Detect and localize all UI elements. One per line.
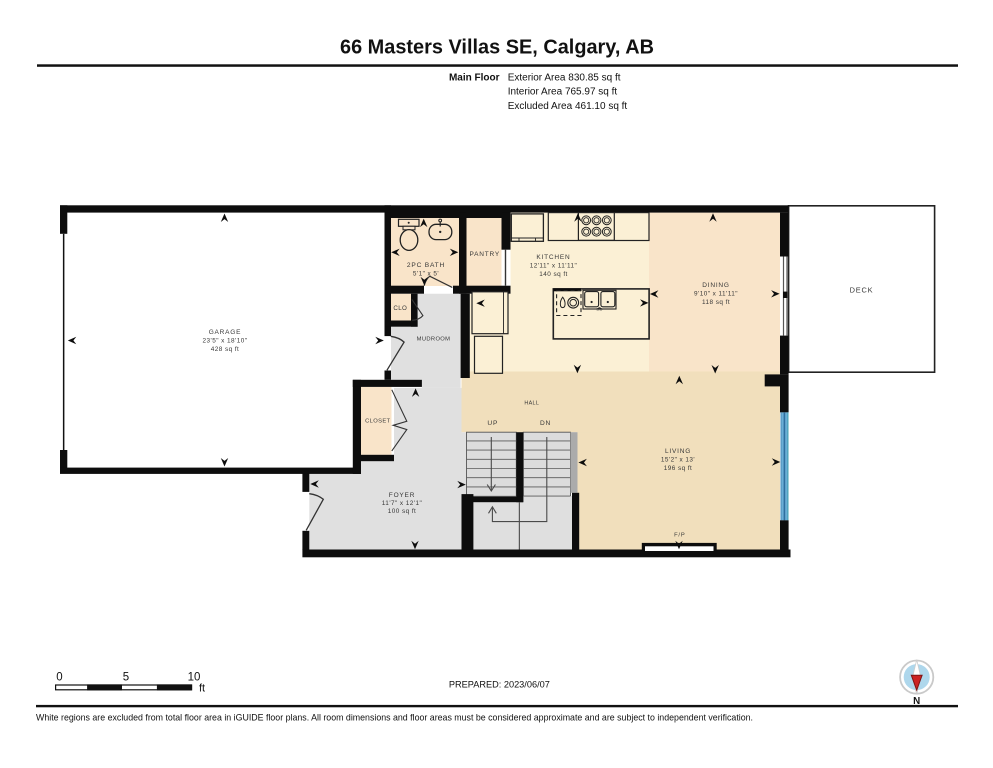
svg-text:DN: DN <box>540 420 551 427</box>
svg-text:15'2" x 13': 15'2" x 13' <box>661 457 695 464</box>
svg-text:ft: ft <box>199 683 205 695</box>
svg-text:12'11" x 11'11": 12'11" x 11'11" <box>530 262 577 269</box>
svg-text:118 sq ft: 118 sq ft <box>702 299 730 306</box>
svg-text:Excluded Area 461.10 sq ft: Excluded Area 461.10 sq ft <box>508 101 628 112</box>
svg-text:DINING: DINING <box>702 282 730 289</box>
svg-text:HALL: HALL <box>524 400 539 406</box>
svg-text:Exterior Area 830.85 sq ft: Exterior Area 830.85 sq ft <box>508 73 621 84</box>
svg-text:KITCHEN: KITCHEN <box>536 254 570 261</box>
svg-text:140 sq ft: 140 sq ft <box>539 271 568 278</box>
svg-text:PREPARED: 2023/06/07: PREPARED: 2023/06/07 <box>449 680 550 690</box>
svg-text:196 sq ft: 196 sq ft <box>664 465 693 472</box>
svg-text:Main Floor: Main Floor <box>449 73 500 84</box>
svg-text:FOYER: FOYER <box>389 492 415 499</box>
svg-text:9'10" x 11'11": 9'10" x 11'11" <box>694 291 738 298</box>
svg-text:10: 10 <box>188 671 201 683</box>
svg-text:100 sq ft: 100 sq ft <box>388 508 417 515</box>
svg-text:UP: UP <box>487 420 498 427</box>
svg-text:DECK: DECK <box>850 286 874 295</box>
svg-text:Interior Area 765.97 sq ft: Interior Area 765.97 sq ft <box>508 87 618 98</box>
svg-text:F/P: F/P <box>674 532 685 538</box>
svg-text:11'7" x 12'1": 11'7" x 12'1" <box>382 500 422 507</box>
svg-text:MUDROOM: MUDROOM <box>417 336 451 342</box>
svg-text:0: 0 <box>56 671 62 683</box>
svg-text:GARAGE: GARAGE <box>209 329 242 336</box>
svg-text:PANTRY: PANTRY <box>470 251 501 258</box>
svg-text:428 sq ft: 428 sq ft <box>211 346 240 353</box>
svg-text:23'5" x 18'10": 23'5" x 18'10" <box>203 338 248 345</box>
svg-text:5: 5 <box>123 671 129 683</box>
svg-text:CLO: CLO <box>393 305 407 312</box>
svg-text:66 Masters Villas SE, Calgary,: 66 Masters Villas SE, Calgary, AB <box>340 37 654 59</box>
svg-text:White regions are excluded fro: White regions are excluded from total fl… <box>36 712 753 722</box>
svg-text:CLOSET: CLOSET <box>365 419 390 425</box>
svg-text:B/D: B/D <box>597 308 603 312</box>
svg-text:5'1" x 5': 5'1" x 5' <box>413 271 439 278</box>
svg-text:LIVING: LIVING <box>665 448 691 455</box>
svg-text:2PC BATH: 2PC BATH <box>407 262 445 269</box>
